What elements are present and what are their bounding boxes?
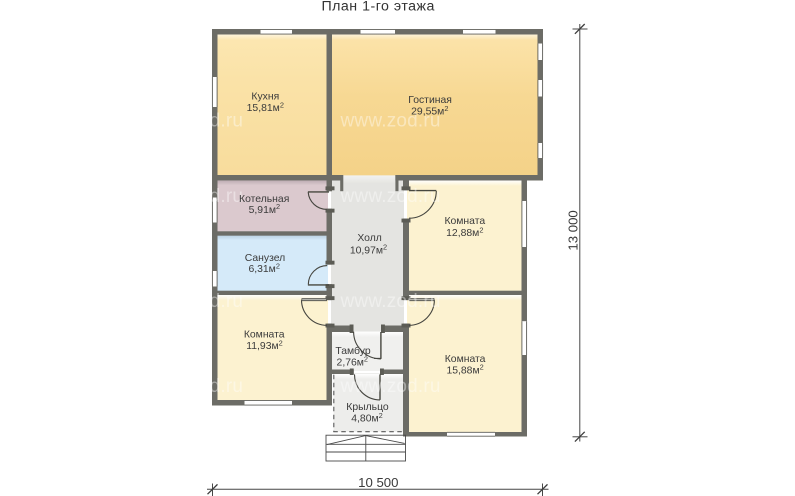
svg-text:2,76м2: 2,76м2 — [337, 355, 369, 369]
svg-text:15,81м2: 15,81м2 — [247, 100, 284, 114]
svg-text:www.zod.ru: www.zod.ru — [340, 291, 441, 312]
svg-text:www.zod.ru: www.zod.ru — [142, 376, 243, 397]
svg-text:www.zod.ru: www.zod.ru — [142, 186, 243, 207]
svg-text:План 1-го этажа: План 1-го этажа — [321, 0, 435, 15]
svg-text:Котельная: Котельная — [239, 194, 289, 205]
svg-text:29,55м2: 29,55м2 — [411, 104, 448, 118]
svg-text:www.zod.ru: www.zod.ru — [142, 291, 243, 312]
svg-text:www.zod.ru: www.zod.ru — [142, 110, 243, 131]
svg-text:5,91м2: 5,91м2 — [249, 202, 281, 216]
svg-text:15,88м2: 15,88м2 — [446, 363, 483, 377]
svg-text:Кухня: Кухня — [251, 92, 279, 103]
svg-text:www.zod.ru: www.zod.ru — [340, 186, 441, 207]
svg-text:12,88м2: 12,88м2 — [446, 226, 483, 240]
svg-text:Холл: Холл — [357, 233, 382, 244]
svg-text:10 500: 10 500 — [358, 475, 398, 490]
svg-text:www.zod.ru: www.zod.ru — [340, 376, 441, 397]
svg-text:4,80м2: 4,80м2 — [351, 411, 383, 425]
svg-text:6,31м2: 6,31м2 — [248, 262, 280, 276]
svg-text:11,93м2: 11,93м2 — [246, 339, 283, 353]
svg-text:13 000: 13 000 — [565, 210, 580, 250]
svg-text:10,97м2: 10,97м2 — [350, 243, 387, 257]
